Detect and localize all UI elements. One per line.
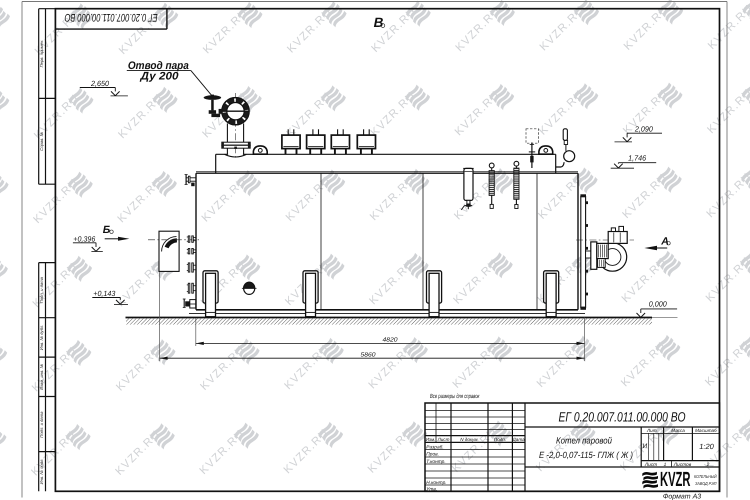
svg-text:Все размеры для справок: Все размеры для справок <box>430 393 480 400</box>
svg-text:N докум.: N докум. <box>460 437 479 442</box>
svg-text:Изм.: Изм. <box>426 437 436 442</box>
svg-text:Пров.: Пров. <box>426 452 439 458</box>
svg-text:Формат А3: Формат А3 <box>663 494 701 500</box>
svg-text:+0,396: +0,396 <box>73 234 96 243</box>
svg-text:2,650: 2,650 <box>90 79 110 88</box>
svg-text:Подп. и дата: Подп. и дата <box>39 411 44 438</box>
svg-text:2: 2 <box>706 462 710 468</box>
svg-text:В: В <box>374 15 384 30</box>
svg-text:2,090: 2,090 <box>634 125 654 134</box>
svg-text:Т.контр.: Т.контр. <box>426 459 445 465</box>
svg-text:Б: Б <box>103 224 111 236</box>
svg-text:ЕГ 0.20.007.011.00.000 ВО: ЕГ 0.20.007.011.00.000 ВО <box>559 410 686 425</box>
svg-text:Подп. и дата: Подп. и дата <box>39 276 44 303</box>
svg-text:Дата: Дата <box>512 437 526 442</box>
svg-text:1:20: 1:20 <box>699 442 714 451</box>
svg-text:ЕГ 0.20.007.011.00.000 ВО: ЕГ 0.20.007.011.00.000 ВО <box>64 11 157 23</box>
svg-text:Лит.: Лит. <box>646 428 658 433</box>
svg-text:Взам. инв. №: Взам. инв. № <box>39 363 44 389</box>
svg-text:+0,143: +0,143 <box>93 289 116 298</box>
svg-text:5860: 5860 <box>361 352 377 359</box>
svg-text:4820: 4820 <box>383 337 399 344</box>
svg-text:Лист: Лист <box>644 462 657 468</box>
svg-text:И: И <box>642 443 647 450</box>
svg-text:KVZR: KVZR <box>660 468 691 491</box>
svg-text:КОТЕЛЬНЫЙ: КОТЕЛЬНЫЙ <box>694 474 717 479</box>
svg-text:0,000: 0,000 <box>649 300 668 309</box>
svg-text:Н.контр.: Н.контр. <box>426 480 446 486</box>
svg-text:Котел паровой: Котел паровой <box>556 436 612 446</box>
svg-text:ЗАВОД РЭП: ЗАВОД РЭП <box>695 481 717 486</box>
svg-text:Е -2,0-0,07-115- ГЛЖ ( Ж ): Е -2,0-0,07-115- ГЛЖ ( Ж ) <box>539 450 633 460</box>
svg-text:Инв. № дубл.: Инв. № дубл. <box>39 325 44 351</box>
svg-text:Разраб.: Разраб. <box>426 444 443 450</box>
svg-text:1,746: 1,746 <box>628 154 647 163</box>
svg-text:Справ. №: Справ. № <box>39 131 44 150</box>
svg-text:Лист: Лист <box>437 437 450 442</box>
svg-text:Масса: Масса <box>671 428 685 433</box>
svg-text:Утв.: Утв. <box>426 486 437 492</box>
svg-text:Подп.: Подп. <box>494 437 506 442</box>
svg-text:Инв. № подл.: Инв. № подл. <box>39 458 44 484</box>
svg-text:Ду 200: Ду 200 <box>139 70 179 82</box>
svg-text:Масштаб: Масштаб <box>695 428 717 433</box>
svg-text:Перв. примен.: Перв. примен. <box>39 40 44 68</box>
